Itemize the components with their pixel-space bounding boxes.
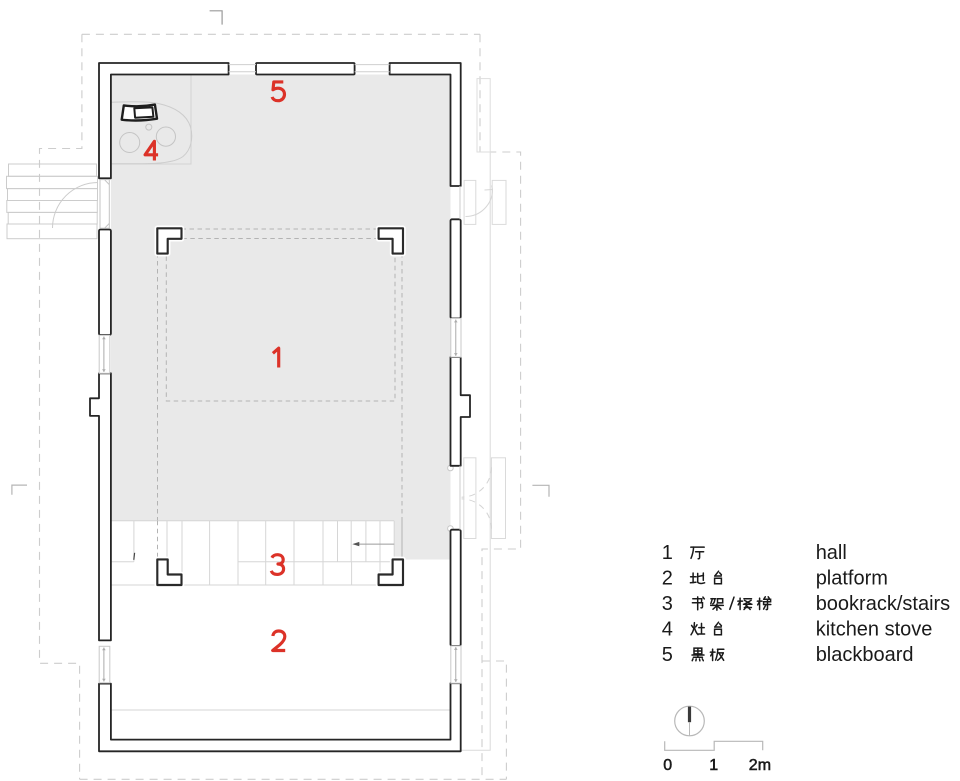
- svg-text:5: 5: [662, 644, 673, 666]
- svg-text:4: 4: [662, 619, 673, 641]
- svg-text:3: 3: [662, 593, 673, 615]
- svg-text:blackboard: blackboard: [816, 644, 914, 666]
- svg-text:2: 2: [662, 568, 673, 590]
- svg-text:1: 1: [709, 757, 718, 774]
- svg-text:1: 1: [662, 542, 673, 564]
- svg-text:kitchen stove: kitchen stove: [816, 619, 933, 641]
- svg-text:0: 0: [663, 757, 672, 774]
- svg-text:2m: 2m: [749, 757, 771, 774]
- svg-text:platform: platform: [816, 568, 888, 590]
- svg-text:hall: hall: [816, 542, 847, 564]
- svg-text:bookrack/stairs: bookrack/stairs: [816, 593, 951, 615]
